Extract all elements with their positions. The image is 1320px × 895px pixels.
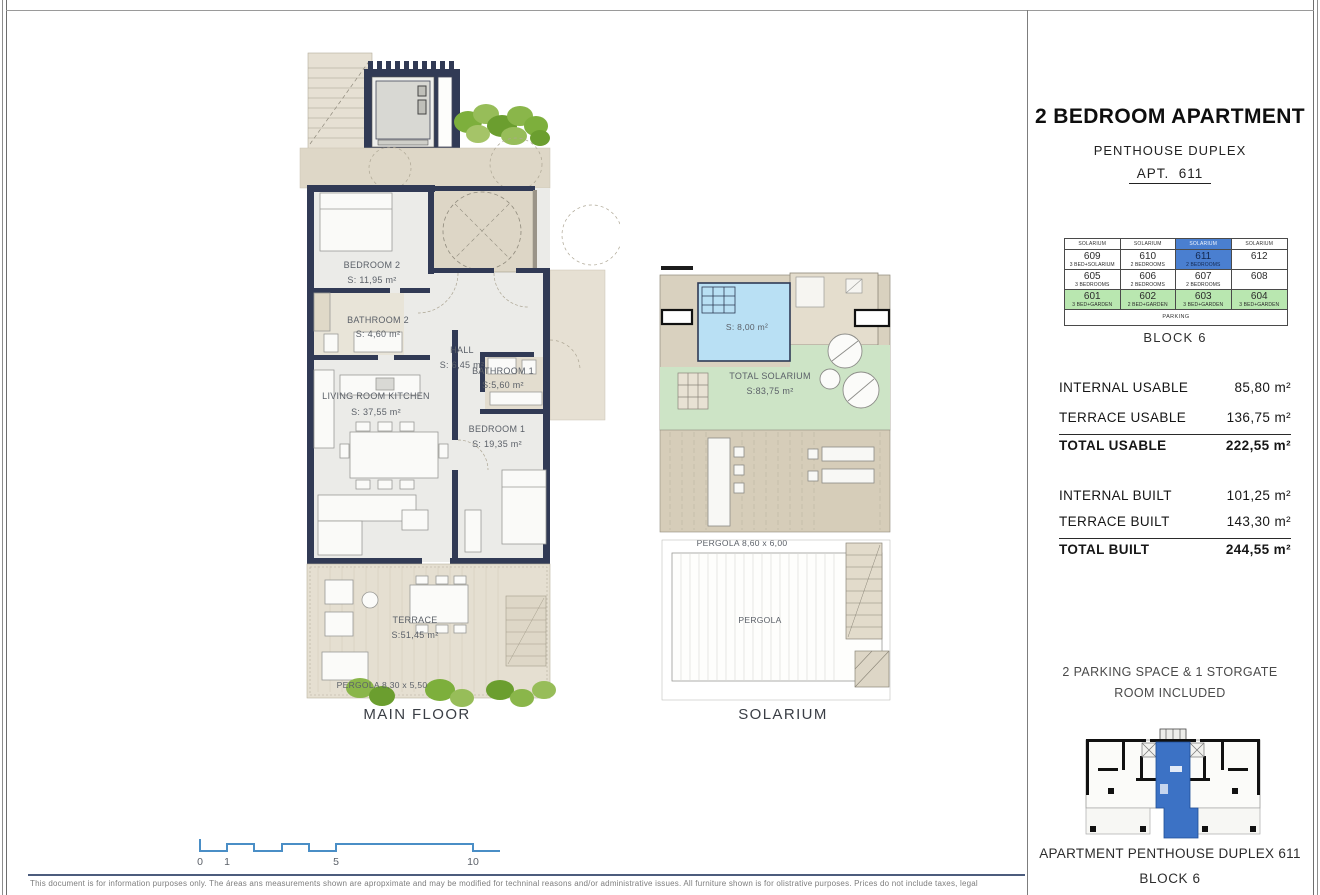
- hall-label: HALL: [450, 345, 474, 355]
- parking-note: 2 PARKING SPACE & 1 STORGATE ROOM INCLUD…: [1028, 662, 1312, 703]
- disclaimer-rule: [28, 874, 1025, 876]
- bedroom1-area: S: 19,35 m²: [472, 439, 522, 449]
- patio-court: [432, 190, 533, 272]
- main-floor-caption: MAIN FLOOR: [317, 706, 517, 723]
- exterior-right: [550, 205, 620, 420]
- page-subtitle: PENTHOUSE DUPLEX: [1028, 143, 1312, 158]
- area-row-terrace-usable: TERRACE USABLE136,75 m²: [1059, 410, 1291, 435]
- grid-header-solarium: SOLARIUM: [1232, 239, 1288, 250]
- area-row-internal-usable: INTERNAL USABLE85,80 m²: [1059, 380, 1291, 395]
- scale-tick-5: 5: [333, 856, 339, 868]
- scale-tick-1: 1: [224, 856, 230, 868]
- apt-number: APT. 611: [1129, 166, 1212, 184]
- pergola-top-label: PERGOLA 8,60 x 6,00: [697, 538, 788, 548]
- parking-row: PARKING: [1065, 310, 1287, 325]
- area-row-total-usable: TOTAL USABLE222,55 m²: [1059, 438, 1291, 453]
- pergola-main-label: PERGOLA 8,30 x 5,50: [337, 680, 428, 690]
- bathroom2-area: S: 4,60 m²: [356, 329, 401, 339]
- terrace-area: S:51,45 m²: [391, 630, 438, 640]
- total-solarium-area: S:83,75 m²: [746, 386, 793, 396]
- scale-tick-10: 10: [467, 856, 479, 868]
- total-solarium-label: TOTAL SOLARIUM: [729, 371, 811, 381]
- scale-bar: 0 1 5 10: [190, 833, 520, 873]
- unit-cell-610: 6102 BEDROOMS: [1121, 250, 1177, 270]
- pergola-bottom-label: PERGOLA: [738, 615, 781, 625]
- main-floor-plan: BEDROOM 2 S: 11,95 m² BATHROOM 2 S: 4,60…: [290, 40, 620, 720]
- unit-cell-601: 6013 BED+GARDEN: [1065, 290, 1121, 310]
- area-summary: INTERNAL USABLE85,80 m² TERRACE USABLE13…: [1059, 380, 1291, 580]
- window-left: [662, 310, 692, 324]
- elevator-core: [364, 61, 460, 157]
- unit-cell-604: 6043 BED+GARDEN: [1232, 290, 1288, 310]
- living-area: S: 37,55 m²: [351, 407, 401, 417]
- footer-apartment-label: APARTMENT PENTHOUSE DUPLEX 611: [1028, 846, 1312, 861]
- unit-cell-607: 6072 BEDROOMS: [1176, 270, 1232, 290]
- frame-right-inner: [1313, 0, 1314, 895]
- pergola-covered: PERGOLA 8,60 x 6,00: [660, 430, 890, 548]
- shelf: [678, 373, 708, 409]
- block-unit-grid: SOLARIUM SOLARIUM SOLARIUM SOLARIUM 6093…: [1064, 238, 1288, 326]
- unit-cell-606: 6062 BEDROOMS: [1121, 270, 1177, 290]
- pergola-open: PERGOLA: [662, 540, 890, 700]
- unit-cell-611-selected: 6112 BEDROOMS: [1176, 250, 1232, 270]
- grid-header-solarium: SOLARIUM: [1065, 239, 1121, 250]
- window-right: [855, 310, 889, 326]
- frame-left-inner: [6, 0, 7, 895]
- living-label: LIVING ROOM KITCHEN: [322, 391, 430, 401]
- wall-mark: [661, 266, 693, 270]
- footer-block-label: BLOCK 6: [1028, 871, 1312, 886]
- grid-header-solarium: SOLARIUM: [1121, 239, 1177, 250]
- bathroom2-label: BATHROOM 2: [347, 315, 409, 325]
- pool: S: 8,00 m²: [698, 283, 790, 361]
- scale-tick-0: 0: [197, 856, 203, 868]
- bedroom2-area: S: 11,95 m²: [347, 275, 396, 285]
- area-row-terrace-built: TERRACE BUILT143,30 m²: [1059, 514, 1291, 539]
- block-caption: BLOCK 6: [1064, 330, 1286, 345]
- pool-area-label: S: 8,00 m²: [726, 322, 768, 332]
- stairs-block: [308, 53, 372, 150]
- unit-cell-612: 612: [1232, 250, 1288, 270]
- unit-cell-609: 6093 BED+SOLARIUM: [1065, 250, 1121, 270]
- bedroom2-label: BEDROOM 2: [344, 260, 401, 270]
- info-panel: 2 BEDROOM APARTMENT PENTHOUSE DUPLEX APT…: [1028, 10, 1312, 895]
- frame-right-outer: [1317, 0, 1318, 895]
- solarium-caption: SOLARIUM: [683, 706, 883, 723]
- unit-cell-602: 6022 BED+GARDEN: [1121, 290, 1177, 310]
- planter-top: [454, 104, 550, 146]
- bathroom1-label: BATHROOM 1: [472, 366, 534, 376]
- plan-sheet: BEDROOM 2 S: 11,95 m² BATHROOM 2 S: 4,60…: [0, 0, 1320, 895]
- solarium-plan: S: 8,00 m² TOTAL SOLARIUM S:83,75 m²: [650, 255, 920, 715]
- grid-header-solarium-highlight: SOLARIUM: [1176, 239, 1232, 250]
- unit-cell-605: 6053 BEDROOMS: [1065, 270, 1121, 290]
- area-row-total-built: TOTAL BUILT244,55 m²: [1059, 542, 1291, 557]
- building-locator-map: [1078, 726, 1268, 844]
- frame-left-outer: [2, 0, 3, 895]
- unit-cell-608: 608: [1232, 270, 1288, 290]
- area-row-internal-built: INTERNAL BUILT101,25 m²: [1059, 488, 1291, 503]
- bedroom1-label: BEDROOM 1: [469, 424, 526, 434]
- disclaimer-text: This document is for information purpose…: [30, 879, 1020, 888]
- terrace-label: TERRACE: [392, 615, 437, 625]
- bathroom1-area: S:5,60 m²: [482, 380, 524, 390]
- unit-cell-603: 6033 BED+GARDEN: [1176, 290, 1232, 310]
- page-title: 2 BEDROOM APARTMENT: [1028, 105, 1312, 129]
